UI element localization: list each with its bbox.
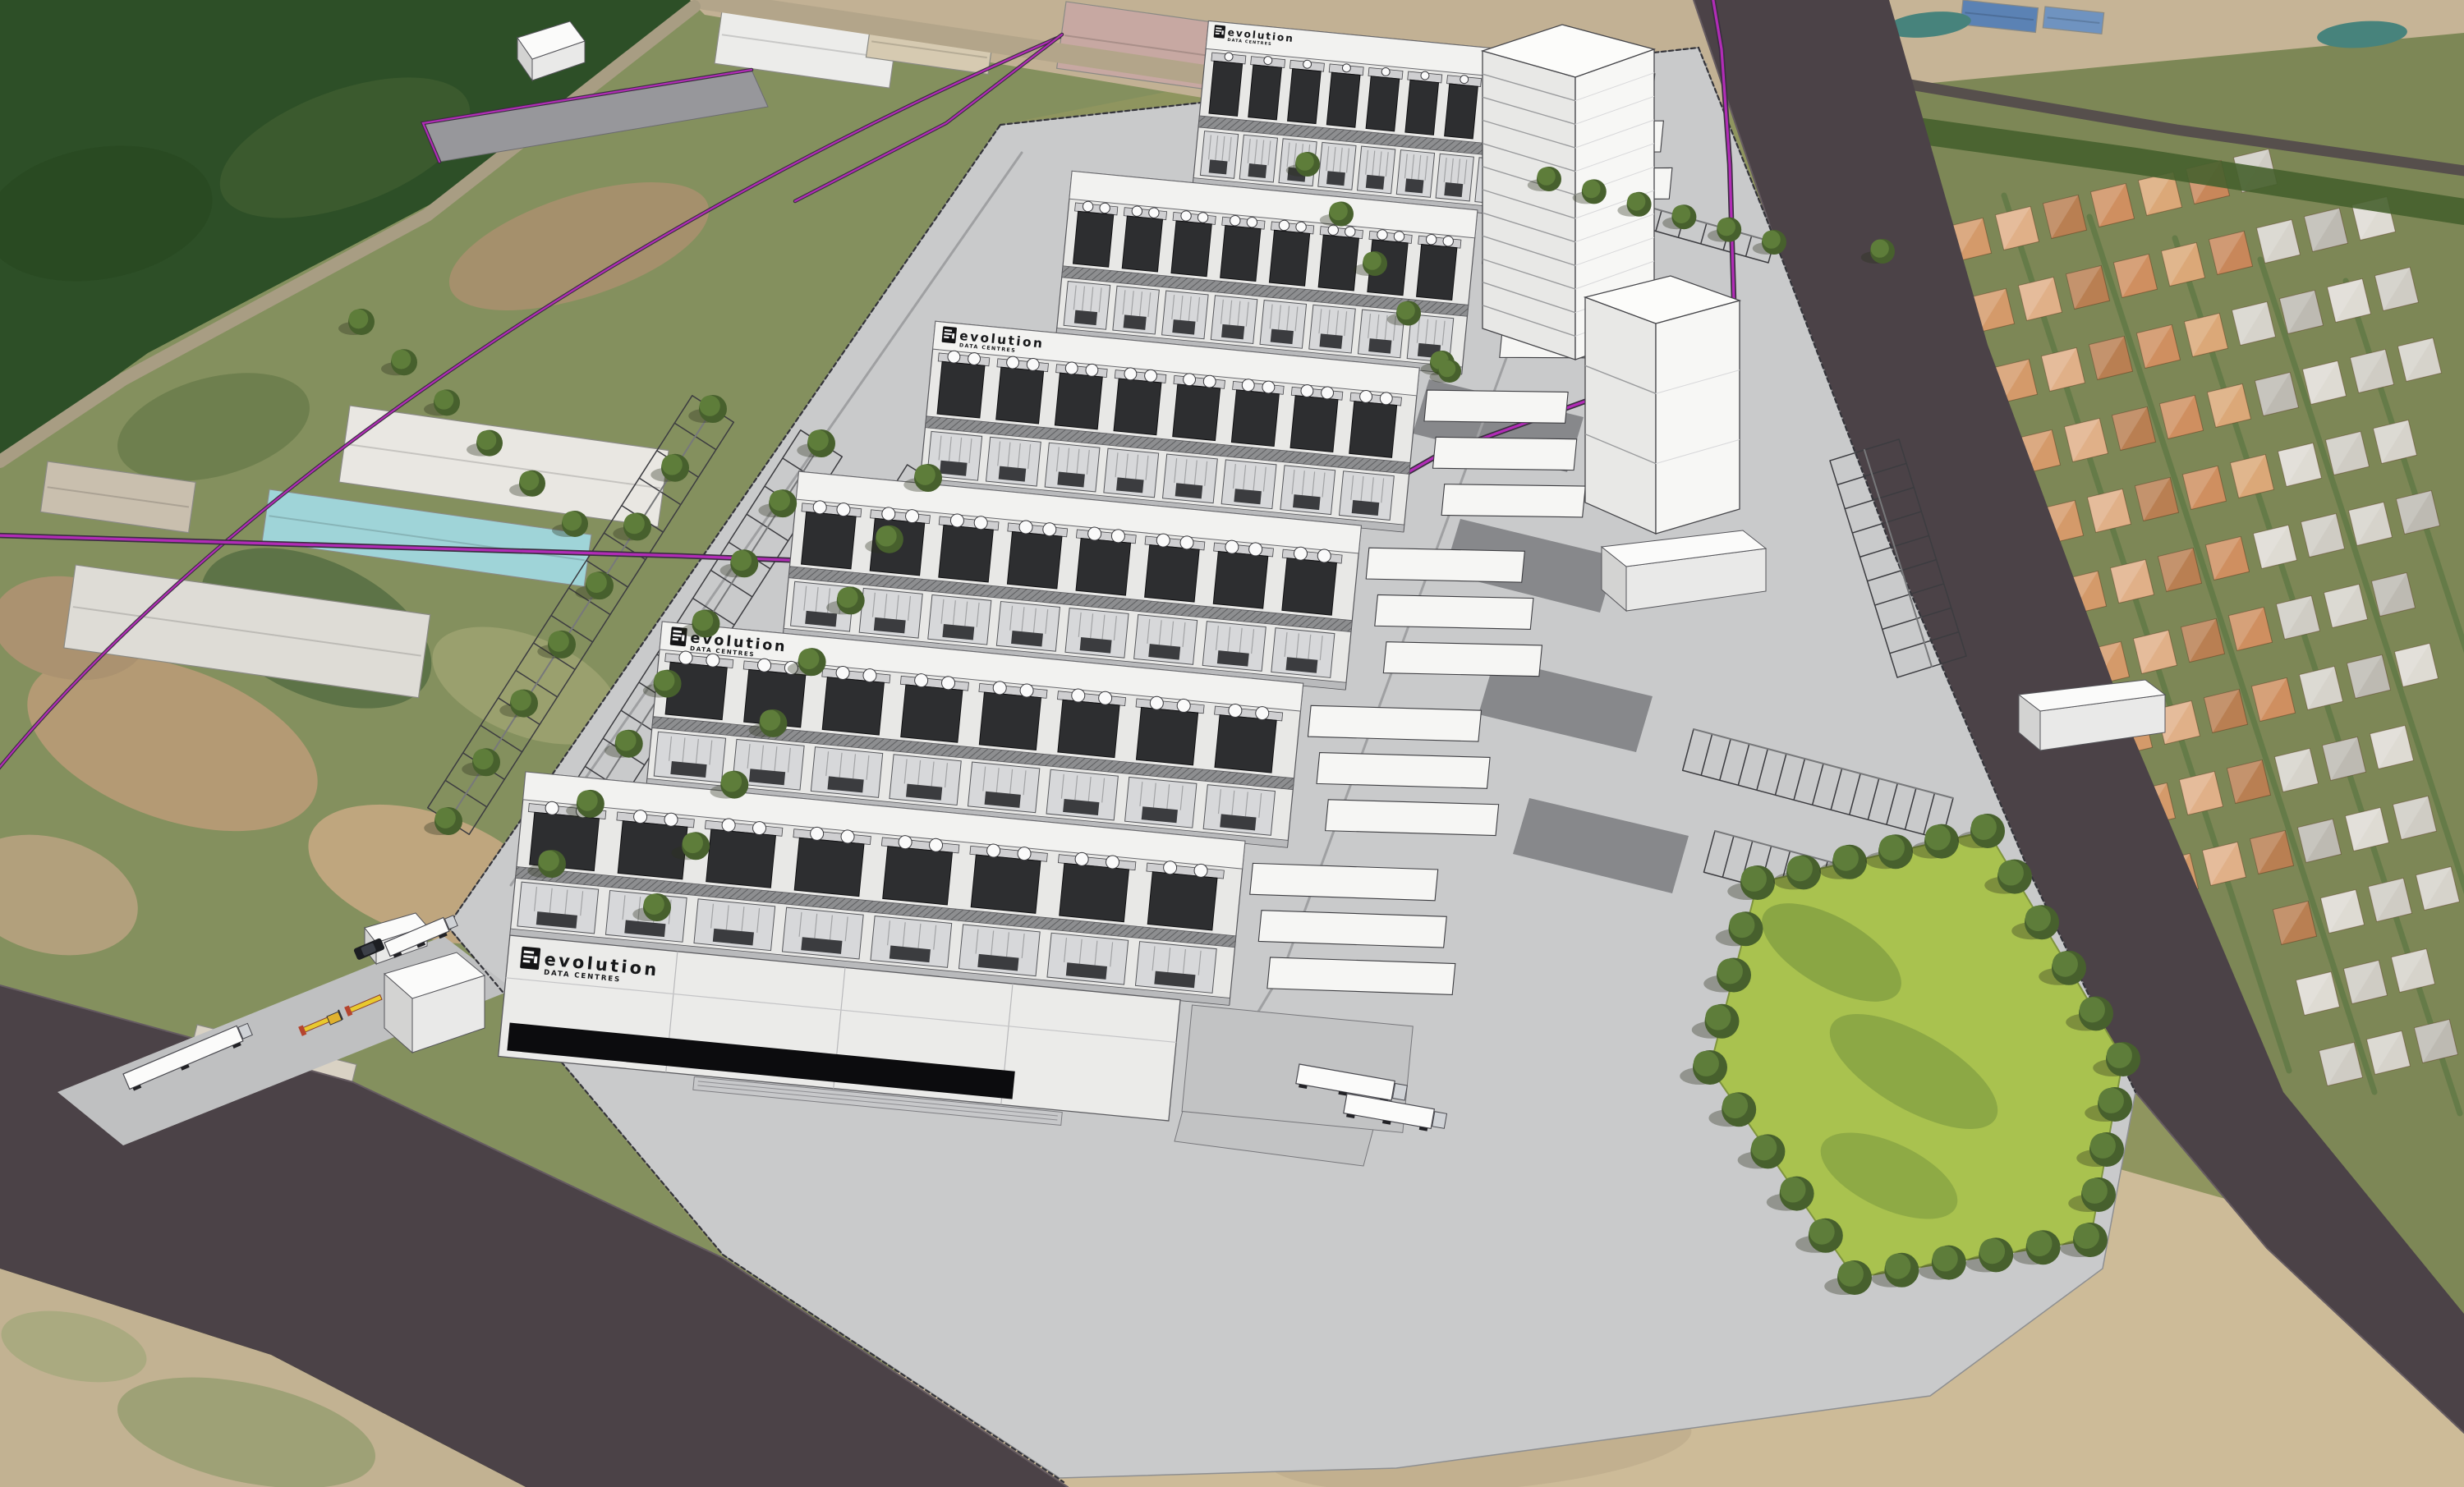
tree-canopy-highlight [2107,1043,2132,1068]
louver-grille [1368,338,1391,353]
house [2112,406,2155,450]
cooling-unit [1114,379,1161,435]
cooling-unit [979,692,1041,750]
cooling-unit [1269,230,1309,286]
house [2301,513,2344,557]
house [2279,290,2323,333]
tree-canopy-highlight [1729,912,1754,938]
house [2227,760,2270,803]
tree-canopy-highlight [1751,1135,1777,1160]
louver-grille [1366,175,1385,190]
tree-canopy-highlight [1705,1005,1731,1030]
house [2394,643,2438,686]
house [2232,301,2275,345]
tree-canopy-highlight [1717,218,1735,236]
louver-grille [1326,171,1345,186]
house [2373,420,2416,463]
cooling-unit [1213,552,1268,609]
tree-canopy-highlight [915,465,935,485]
louver-grille [1352,500,1380,516]
house [2320,889,2364,933]
cooling-unit [1326,72,1360,127]
cooling-fan [1460,75,1469,84]
cooling-unit [901,685,963,742]
tree-canopy-highlight [2090,1133,2116,1159]
house [2370,725,2413,769]
tree-canopy-highlight [1885,1254,1910,1279]
louver-grille [1074,310,1097,325]
cooling-fan [1303,60,1312,69]
tree-canopy-highlight [1722,1093,1748,1118]
louver-grille [1248,163,1266,178]
tree-canopy-highlight [1833,846,1859,871]
tree-canopy-highlight [477,430,497,450]
house [2207,383,2250,427]
house [2302,360,2346,404]
louver-grille [1116,477,1144,493]
tree-canopy-highlight [549,631,569,652]
tree-canopy-highlight [511,690,531,710]
cooling-fan [1099,203,1110,214]
cooling-unit [1173,384,1221,441]
cooling-unit [996,367,1044,424]
house [2090,183,2134,227]
tree-canopy-highlight [1809,1219,1835,1245]
cooling-unit [1405,80,1439,135]
cooling-fan [1180,210,1192,222]
tree-canopy-highlight [662,454,683,475]
truck-cab [1393,1084,1408,1101]
house [2255,372,2298,415]
house [1995,206,2039,250]
house [2322,737,2365,780]
tree-canopy-highlight [2025,906,2051,931]
tree-canopy-highlight [1538,168,1556,186]
tree-canopy-highlight [2099,1088,2124,1113]
tree-canopy-highlight [563,512,582,531]
tree-canopy-highlight [615,730,636,750]
house [2391,948,2434,992]
cooling-unit [1366,76,1400,131]
data-centre-campus-aerial-render: evolutionDATA CENTRESevolutionDATA CENTR… [0,0,2464,1487]
house [2296,971,2339,1015]
cooling-unit [937,361,985,418]
louver-grille [999,466,1027,482]
cooling-unit [1060,863,1129,921]
tree-canopy-highlight [1296,153,1314,171]
house [2041,347,2085,391]
house [2159,395,2203,438]
house [2278,443,2321,486]
house [2158,548,2201,591]
cooling-unit [1209,61,1243,116]
house [2251,677,2295,721]
cooling-fan [1247,217,1258,228]
tree-canopy-highlight [2074,1223,2099,1249]
cooling-fan [1083,201,1094,213]
cooling-unit [822,677,884,735]
louver-grille [1221,324,1244,339]
cooling-unit [1058,700,1119,757]
house [2064,418,2108,461]
tree-canopy-highlight [1879,835,1905,861]
house [2414,1019,2457,1062]
cooling-fan [1345,226,1356,237]
house [2371,572,2415,616]
tree-canopy-highlight [539,851,559,871]
house [2324,584,2367,627]
tree-canopy-highlight [770,490,790,511]
louver-grille [1124,314,1147,329]
house [2348,502,2392,545]
house [2327,278,2370,322]
house [2276,595,2319,639]
tree-canopy-highlight [1741,866,1767,892]
house [2397,337,2441,381]
tree-canopy-highlight [1694,1051,1719,1076]
house [2202,842,2246,885]
house [2253,525,2296,568]
house [2133,630,2177,673]
tree-canopy-highlight [1933,1246,1958,1271]
house [2299,666,2342,709]
cooling-fan [1442,236,1454,247]
louver-grille [940,461,968,476]
house [2179,771,2223,815]
tree-canopy-highlight [731,550,752,571]
house [2110,559,2154,603]
tree-canopy-highlight [1627,192,1645,210]
house [2250,830,2293,874]
tree-canopy-highlight [2053,952,2078,977]
tree-canopy-highlight [435,808,456,828]
cooling-fan [1295,222,1307,233]
house [2205,536,2249,580]
house [2230,454,2273,498]
cooling-unit [1288,69,1322,124]
house [2209,231,2252,274]
cooling-unit [1171,221,1211,277]
house [2181,618,2224,662]
cooling-unit [1231,390,1279,447]
cooling-unit [1445,84,1478,139]
cooling-unit [1349,402,1397,458]
cooling-unit [1122,216,1162,272]
tree-canopy-highlight [1330,202,1348,220]
cooling-unit [802,512,857,569]
tree-canopy-highlight [644,894,664,915]
cooling-fan [1148,207,1160,218]
house [2304,208,2347,251]
house [2228,607,2272,650]
tree-canopy-highlight [624,513,645,534]
cooling-unit [1282,558,1337,616]
cooling-unit [971,855,1041,913]
house [2184,313,2227,356]
cooling-unit [1147,872,1217,930]
tree-canopy-highlight [654,670,674,691]
tree-canopy-highlight [586,572,607,593]
cooling-unit [1136,707,1198,764]
tree-canopy-highlight [434,390,454,410]
tree-canopy-highlight [2082,1178,2108,1204]
tree-canopy-highlight [1397,301,1415,319]
house [2347,654,2390,698]
house [2136,324,2180,368]
house [2066,265,2109,309]
louver-grille [1405,178,1424,193]
tree-canopy-highlight [2080,997,2105,1022]
house [2325,431,2369,475]
midrise-building-side-face [1585,297,1656,534]
tree-canopy-highlight [473,749,494,769]
cooling-fan [1377,229,1388,241]
house [2204,689,2247,732]
cooling-unit [1007,531,1062,589]
louver-grille [1444,182,1463,197]
cooling-fan [1230,215,1241,227]
tree-canopy-highlight [683,833,703,853]
cooling-unit [1215,715,1276,773]
cooling-fan [1381,67,1391,76]
house [2319,1042,2362,1085]
cooling-unit [1248,65,1282,120]
tree-canopy-highlight [1763,231,1781,249]
cooling-unit [939,525,994,582]
house [2396,490,2439,534]
louver-grille [1175,483,1203,498]
tree-canopy-highlight [1979,1238,2005,1264]
cooling-unit [1145,545,1200,603]
cooling-unit [1318,235,1358,291]
house [2135,477,2178,521]
tree-canopy-highlight [1672,205,1690,223]
tree-canopy-highlight [1871,240,1889,258]
house [2089,336,2132,379]
tree-canopy-highlight [1582,180,1600,198]
house [2350,349,2393,392]
house [2113,254,2157,297]
louver-grille [1209,159,1228,174]
house [2182,466,2226,509]
cooling-unit [706,829,776,888]
cooling-unit [1221,226,1261,282]
tree-canopy-highlight [349,310,369,329]
house [2393,796,2436,839]
tree-canopy-highlight [798,649,819,669]
cooling-unit [883,847,953,905]
house [2018,277,2062,320]
tree-canopy-highlight [1780,1177,1805,1202]
tree-canopy-highlight [692,610,713,631]
house [2161,242,2204,286]
cooling-unit [1055,373,1102,429]
house [2368,878,2411,921]
louver-grille [1319,333,1342,348]
cooling-fan [1225,53,1234,62]
house [2273,901,2316,944]
tree-canopy-highlight [1787,856,1813,881]
tree-canopy-highlight [721,771,742,792]
louver-grille [1172,319,1195,334]
tree-canopy-highlight [1838,1261,1864,1287]
house [2345,807,2388,851]
house [2343,960,2387,1003]
cooling-unit [1073,211,1114,267]
house [2256,219,2300,263]
cooling-fan [1263,56,1272,65]
house [2043,195,2086,238]
cooling-fan [1279,220,1290,232]
aerial-render-stage: evolutionDATA CENTRESevolutionDATA CENTR… [0,0,2464,1487]
cooling-fan [1394,231,1405,242]
tree-canopy-highlight [2026,1231,2052,1256]
tree-canopy-highlight [837,587,857,608]
tree-canopy-highlight [700,396,720,416]
tree-canopy-highlight [760,710,780,731]
cooling-fan [1421,71,1430,80]
cooling-unit [1076,538,1131,595]
cooling-unit [1417,245,1457,301]
tree-canopy-highlight [876,525,897,546]
house [2297,819,2341,862]
louver-grille [1293,494,1321,510]
tree-canopy-highlight [808,430,829,451]
cooling-unit [794,838,864,896]
cooling-fan [1132,205,1143,217]
louver-grille [1234,489,1262,504]
tree-canopy-highlight [1998,860,2024,885]
cooling-fan [1198,212,1209,223]
tree-canopy-highlight [1971,815,1997,840]
truck-cab [1432,1112,1447,1129]
tree-canopy-highlight [1925,824,1951,850]
tree-canopy-highlight [392,350,411,369]
tree-canopy-highlight [577,791,598,811]
house [2366,1030,2410,1074]
house [2374,267,2418,310]
cooling-fan [1342,63,1351,72]
tree-canopy-highlight [1717,958,1743,984]
house [2274,748,2318,792]
tree-canopy-highlight [1439,360,1456,378]
house [2416,866,2459,910]
tree-canopy-highlight [520,470,540,490]
midrise-building-front-face [1656,301,1740,534]
louver-grille [1057,472,1085,488]
cooling-fan [1426,234,1437,246]
tree-canopy-highlight [1363,252,1381,270]
cooling-unit [1290,396,1338,452]
louver-grille [1271,329,1294,344]
house [2087,489,2131,532]
